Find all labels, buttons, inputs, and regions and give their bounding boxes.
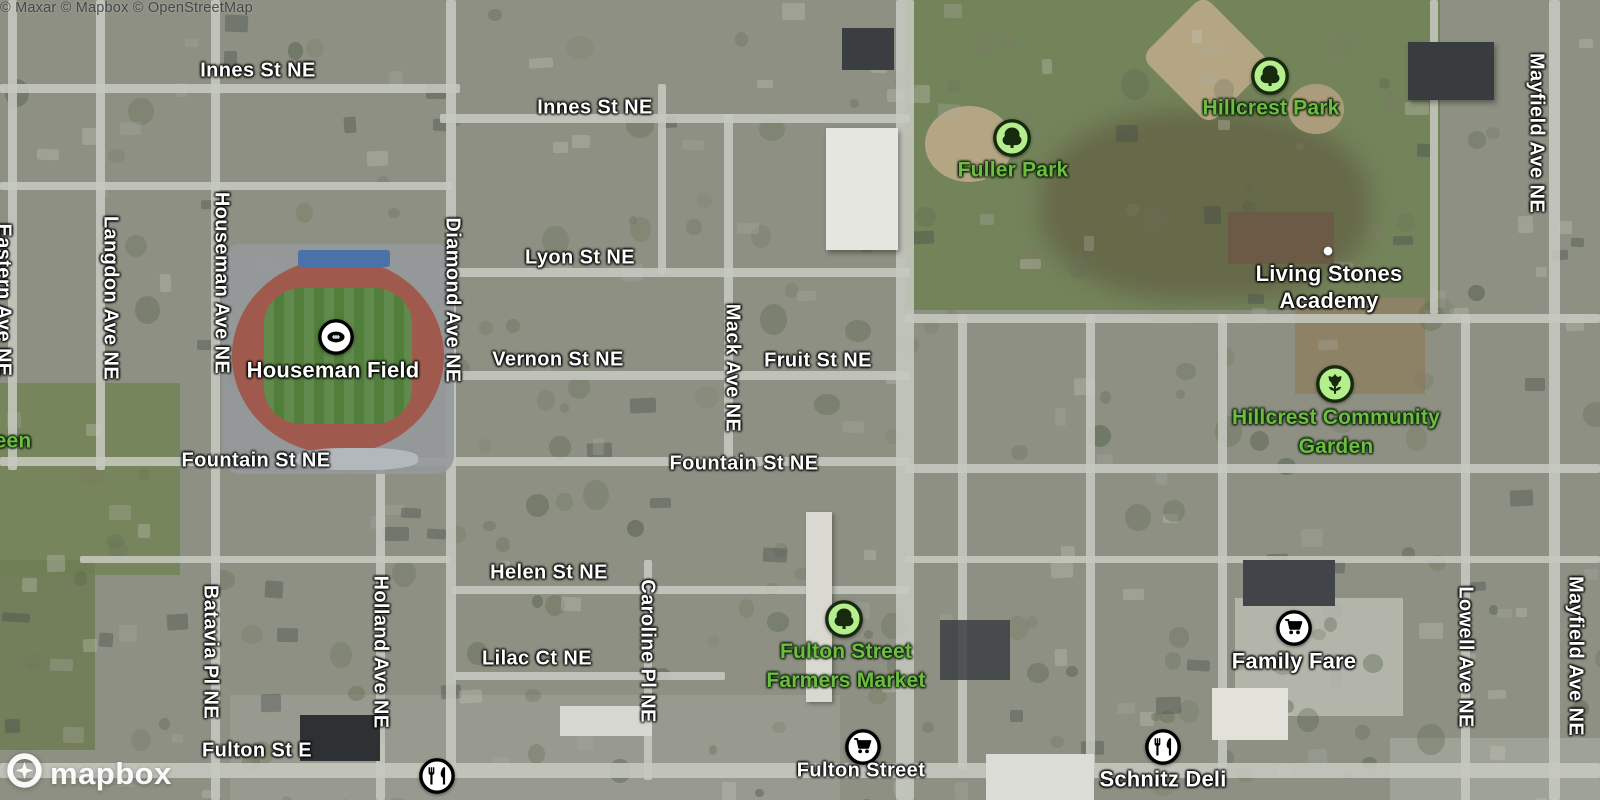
satellite-map[interactable]: Innes St NEInnes St NELyon St NEVernon S… [0, 0, 1600, 800]
map-attribution[interactable]: © Maxar © Mapbox © OpenStreetMap [0, 0, 1600, 800]
